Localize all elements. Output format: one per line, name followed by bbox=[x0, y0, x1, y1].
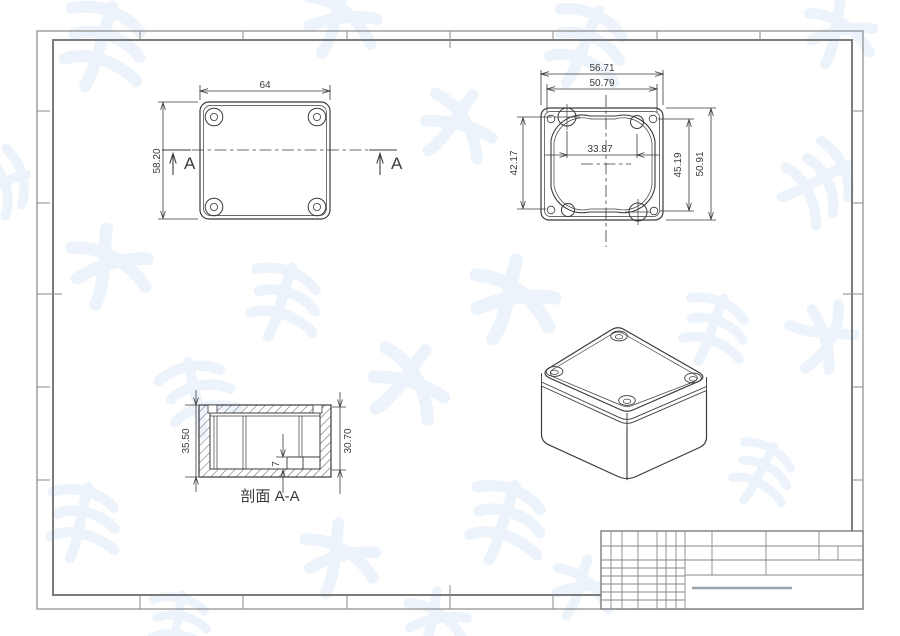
screw-holes bbox=[205, 108, 326, 216]
step-feature bbox=[287, 457, 320, 469]
section-marker-left: A bbox=[184, 154, 196, 173]
section-inner bbox=[210, 413, 320, 469]
lid-inner-edge bbox=[204, 106, 327, 216]
dim-label-inner-height: 30.70 bbox=[343, 428, 354, 453]
dim-label-height: 58.20 bbox=[152, 148, 163, 173]
title-block bbox=[601, 531, 863, 609]
drawing-sheet: 64 58.20 A A bbox=[0, 0, 900, 636]
dim-label-right-height-inner: 45.19 bbox=[673, 152, 684, 177]
section-marker-right: A bbox=[391, 154, 403, 173]
dim-label-outer-width: 56.71 bbox=[589, 63, 614, 74]
title-block-outline bbox=[601, 531, 863, 609]
dimension-42-17 bbox=[517, 117, 552, 209]
iso-screw-holes bbox=[546, 331, 701, 405]
dim-label-right-height-outer: 50.91 bbox=[695, 151, 706, 176]
dim-label-outer-height: 35.50 bbox=[181, 428, 192, 453]
dim-label-left-height: 42.17 bbox=[509, 150, 520, 175]
dim-label-width: 64 bbox=[259, 80, 271, 91]
section-cut-arrows bbox=[162, 150, 397, 175]
cad-drawing-canvas: 64 58.20 A A bbox=[0, 0, 900, 636]
cavity-wall bbox=[551, 115, 655, 213]
dim-label-mid-width: 50.79 bbox=[589, 78, 614, 89]
boss-hole-left bbox=[208, 405, 217, 413]
boss-hole-right bbox=[313, 405, 322, 413]
top-view: 64 58.20 A A bbox=[152, 80, 403, 219]
dim-label-step: 7 bbox=[271, 461, 282, 467]
section-view: 35.50 30.70 7 剖面 A-A bbox=[181, 390, 354, 505]
isometric-view bbox=[542, 328, 707, 480]
dim-label-boss-width: 33.87 bbox=[587, 144, 612, 155]
interior-ribs bbox=[210, 416, 320, 469]
section-view-label: 剖面 A-A bbox=[240, 488, 299, 505]
bottom-inside-view: 56.71 50.79 33.87 42.17 45.19 50.91 bbox=[509, 63, 716, 247]
cavity-wall-inner bbox=[554, 118, 652, 210]
